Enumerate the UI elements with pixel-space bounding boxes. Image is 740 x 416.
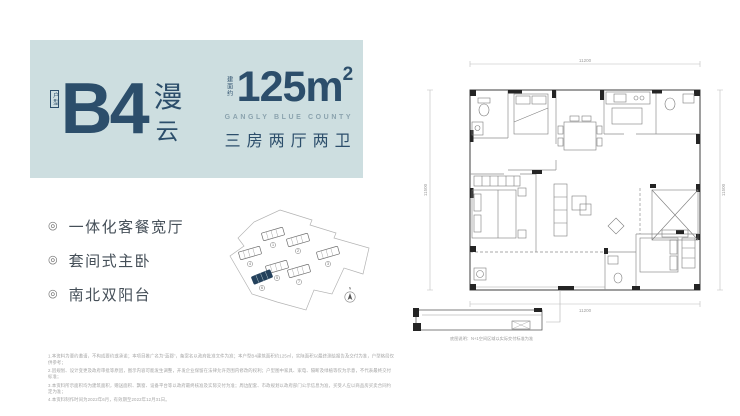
bullet-circle-icon: ◎ xyxy=(48,255,58,266)
detail-drawing xyxy=(413,308,542,331)
feature-label: 南北双阳台 xyxy=(69,284,152,305)
bullet-circle-icon: ◎ xyxy=(48,289,58,300)
feature-label: 套间式主卧 xyxy=(69,250,152,271)
detail-caption: 底图说明：N+1空间区域以实际交付标准为准 xyxy=(450,335,533,342)
unit-name-char-2: 云 xyxy=(156,120,183,143)
north-label: N xyxy=(349,287,352,291)
feature-label: 一体化客餐宽厅 xyxy=(69,216,185,237)
dim-label-right: 11500 xyxy=(721,183,726,196)
area-row: 建面约 125m 2 xyxy=(225,67,357,108)
unit-name: 漫 云 xyxy=(154,84,183,143)
project-english-name: GANGLY BLUE COUNTY xyxy=(225,114,357,121)
feature-list: ◎ 一体化客餐宽厅 ◎ 套间式主卧 ◎ 南北双阳台 xyxy=(48,216,184,318)
disclaimer: 1.本资料为要约邀请，不构成要约或承诺；本项目推广名为“蓝郡”，备案名以政府批准… xyxy=(48,354,395,405)
hero-content: 户型 B4 漫 云 建面约 125m 2 GANGLY BLUE COUNTY … xyxy=(30,40,363,178)
north-arrow-icon: N xyxy=(345,287,355,303)
disclaimer-line: 4.本资料制作时间为2022年6月，有效期至2022年12月31日。 xyxy=(48,397,395,403)
floorplan-poster: 户型 B4 漫 云 建面约 125m 2 GANGLY BLUE COUNTY … xyxy=(0,0,740,416)
building-number: 2 xyxy=(297,249,299,253)
floor-plan: 11200 11500 11500 11200 xyxy=(408,38,738,348)
feature-item: ◎ 一体化客餐宽厅 xyxy=(48,216,184,237)
detail-leader-line xyxy=(546,290,560,322)
bullet-circle-icon: ◎ xyxy=(48,221,58,232)
disclaimer-line: 1.本资料为要约邀请，不构成要约或承诺；本项目推广名为“蓝郡”，备案名以政府批准… xyxy=(48,354,395,367)
dim-label-left: 11500 xyxy=(423,183,428,196)
dim-label-top: 11200 xyxy=(579,58,592,63)
building-number: 5 xyxy=(276,276,278,280)
area-superscript: 2 xyxy=(343,64,354,86)
site-boundary xyxy=(230,210,369,310)
area-tag: 建面约 xyxy=(225,76,234,97)
building-number: 3 xyxy=(327,262,329,266)
unit-name-char-1: 漫 xyxy=(154,84,183,113)
dim-label-bottom: 11200 xyxy=(579,308,592,313)
feature-item: ◎ 南北双阳台 xyxy=(48,284,184,305)
area-group: 建面约 125m 2 GANGLY BLUE COUNTY 三房两厅两卫 xyxy=(225,67,357,152)
area-value: 125m xyxy=(237,67,343,108)
feature-item: ◎ 套间式主卧 xyxy=(48,250,184,271)
building-number: 7 xyxy=(298,280,300,284)
disclaimer-line: 2.因规划、设计变更及政府审批等原因，图示内容可能发生调整，开发企业保留在法律允… xyxy=(48,368,395,381)
hero-panel: 户型 B4 漫 云 建面约 125m 2 GANGLY BLUE COUNTY … xyxy=(30,40,363,178)
site-plan: 1 2 3 4 5 6 xyxy=(222,196,377,331)
unit-code: B4 xyxy=(61,76,147,142)
disclaimer-line: 3.本资料所示面积均为建筑面积，赠送面积、飘窗、设备平台等以政府最终核准及实际交… xyxy=(48,383,395,396)
room-layout-text: 三房两厅两卫 xyxy=(225,127,357,151)
unit-type-tag: 户型 xyxy=(50,90,59,108)
building-number: 6 xyxy=(261,286,263,290)
building-number: 4 xyxy=(249,262,251,266)
unit-group: 户型 B4 漫 云 xyxy=(50,76,183,143)
building-number: 1 xyxy=(272,243,274,247)
